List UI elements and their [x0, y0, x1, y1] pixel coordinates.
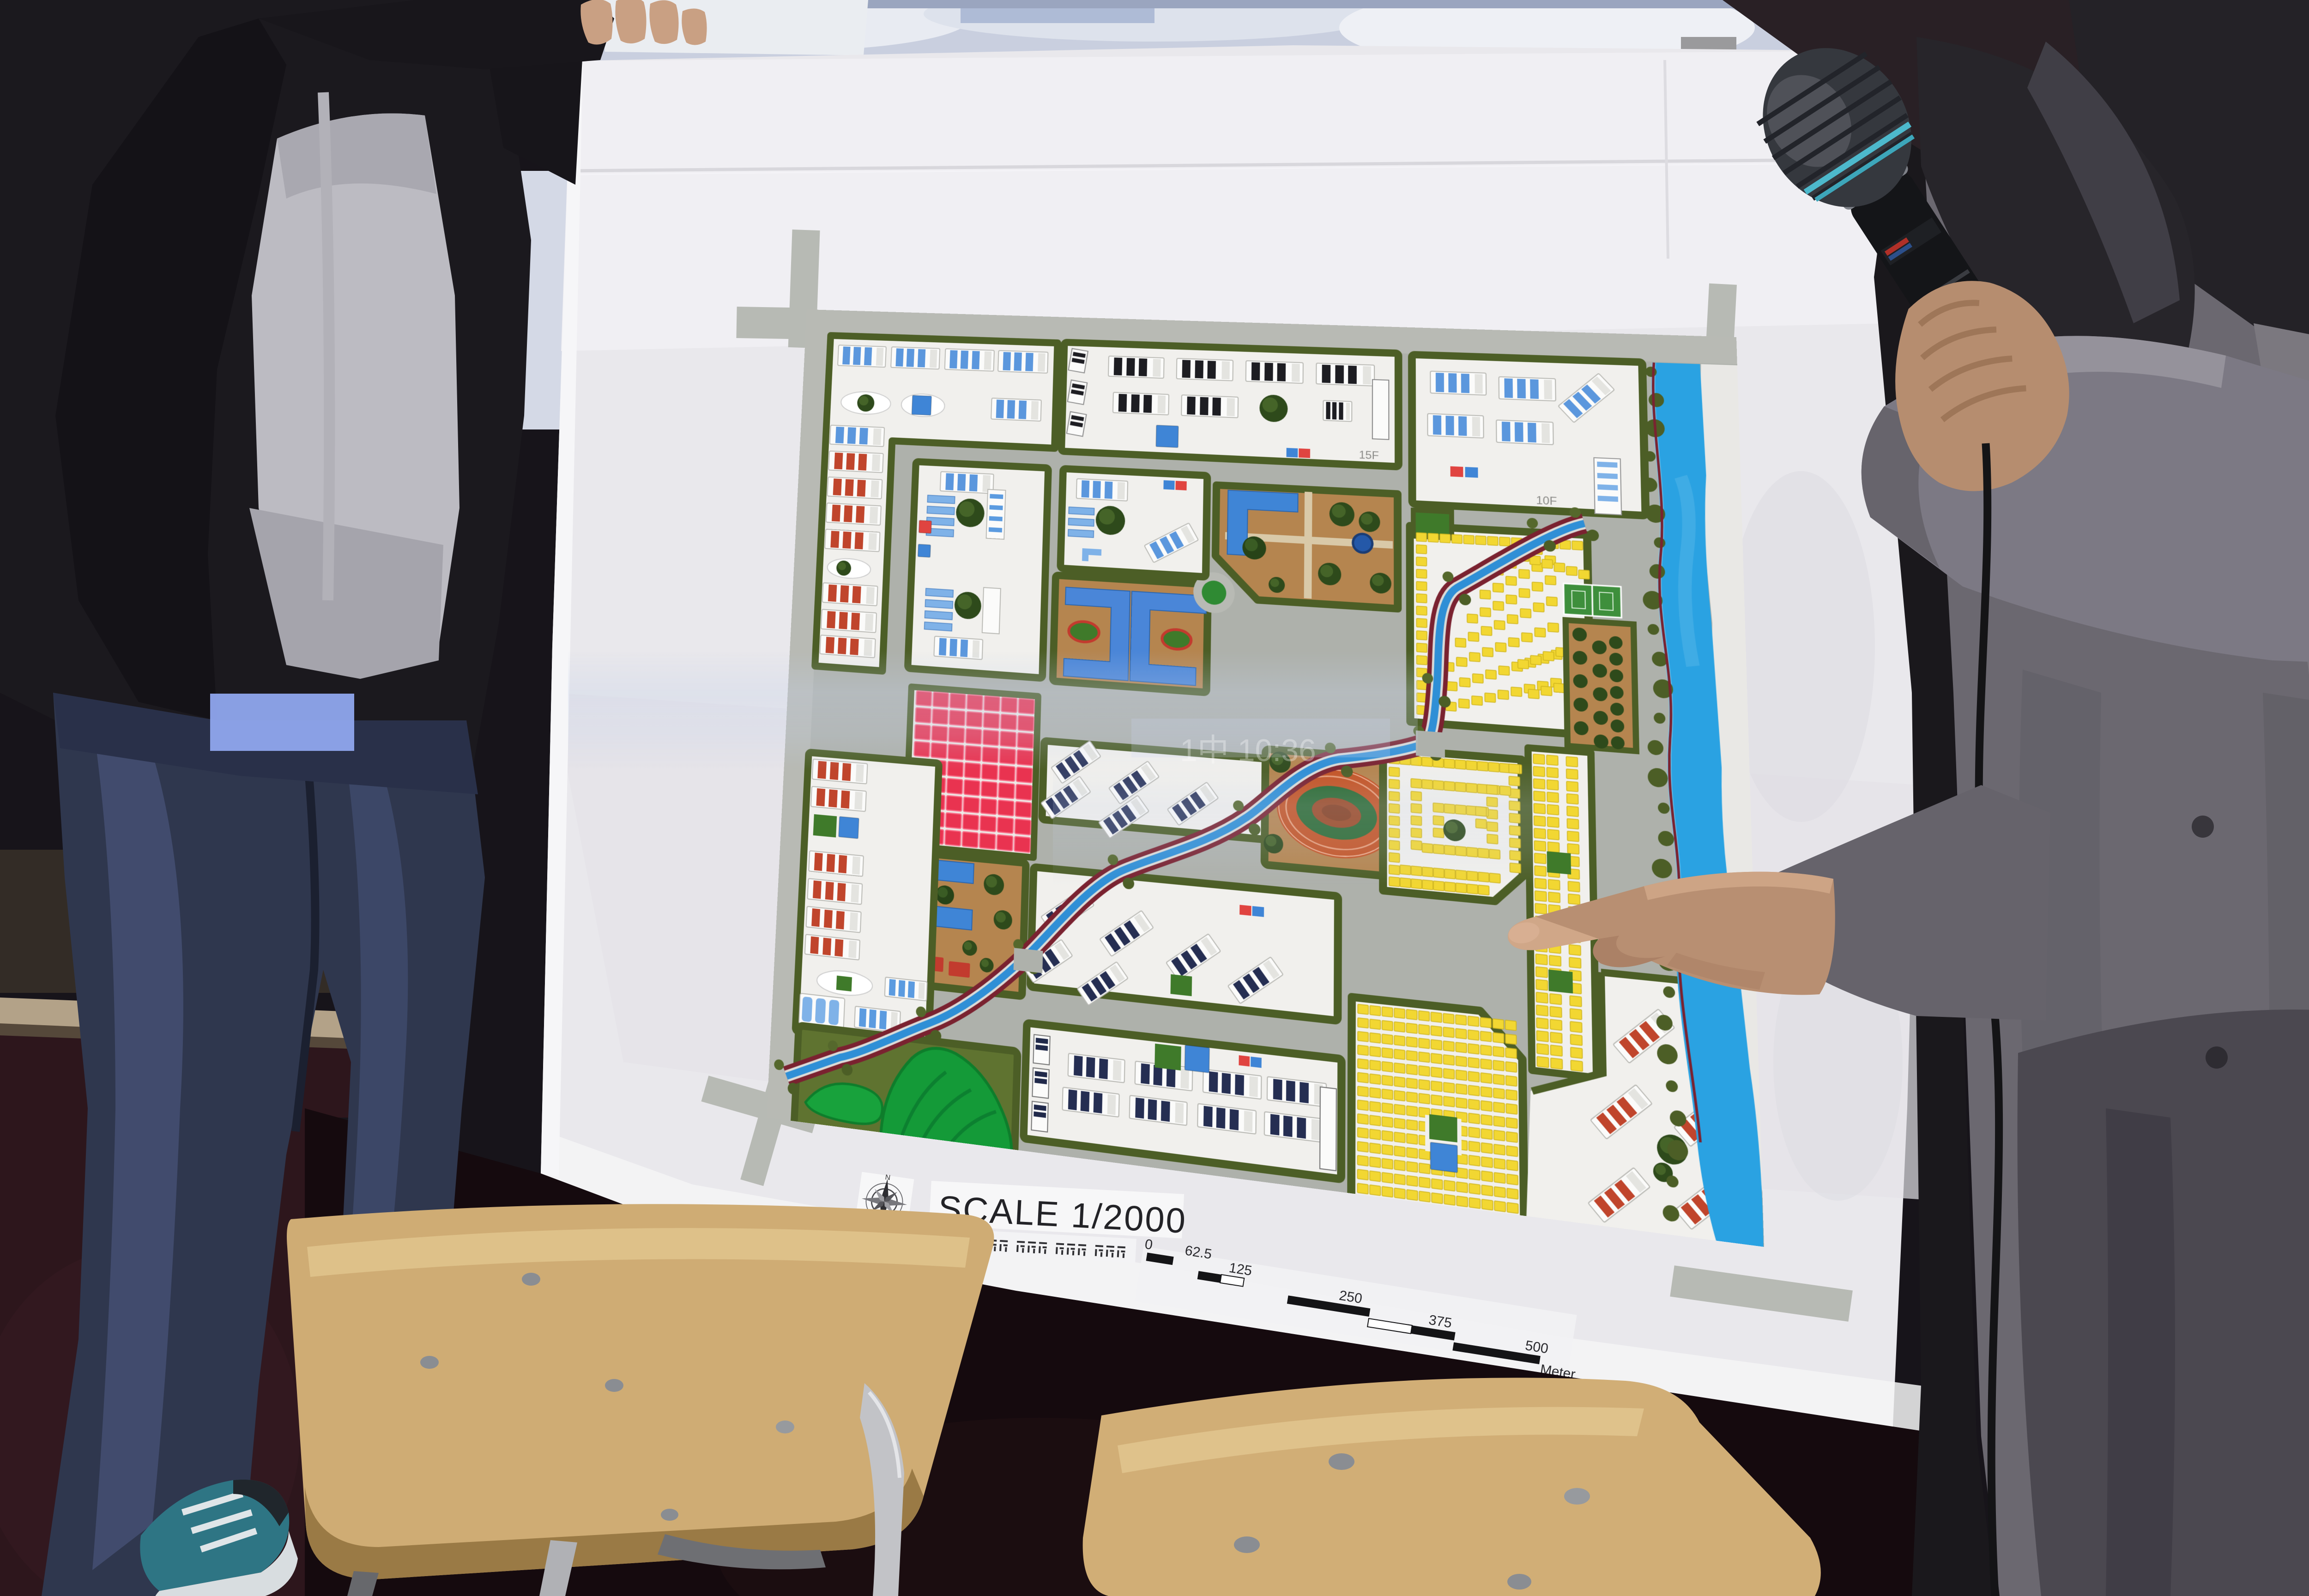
svg-text:1中 10:36: 1中 10:36 — [1180, 733, 1316, 768]
